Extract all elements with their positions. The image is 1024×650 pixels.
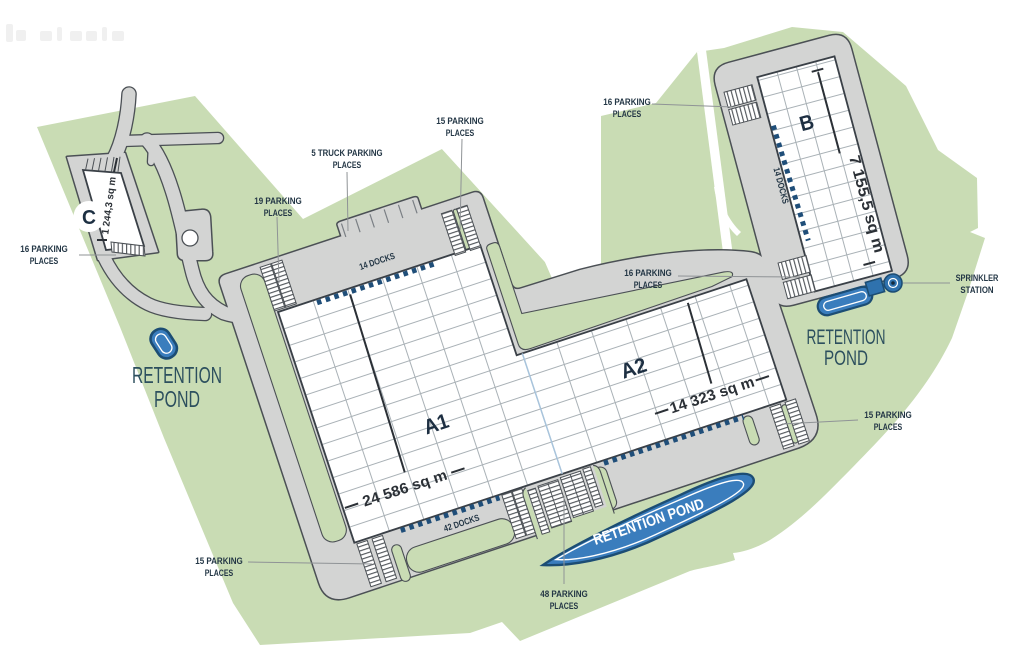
- svg-text:PLACES: PLACES: [874, 422, 903, 433]
- svg-text:PLACES: PLACES: [205, 568, 234, 579]
- svg-text:RETENTION: RETENTION: [132, 362, 222, 388]
- svg-text:STATION: STATION: [960, 285, 993, 296]
- svg-text:PLACES: PLACES: [264, 208, 293, 219]
- svg-text:48 PARKING: 48 PARKING: [540, 589, 588, 600]
- svg-text:16 PARKING: 16 PARKING: [624, 268, 672, 279]
- svg-text:SPRINKLER: SPRINKLER: [956, 273, 999, 284]
- svg-text:C: C: [82, 207, 96, 229]
- svg-text:5 TRUCK PARKING: 5 TRUCK PARKING: [311, 148, 382, 159]
- svg-text:15 PARKING: 15 PARKING: [195, 556, 243, 567]
- svg-text:PLACES: PLACES: [333, 160, 362, 171]
- svg-text:POND: POND: [154, 386, 200, 412]
- svg-text:16 PARKING: 16 PARKING: [603, 97, 651, 108]
- svg-text:15 PARKING: 15 PARKING: [436, 116, 484, 127]
- svg-text:PLACES: PLACES: [30, 256, 59, 267]
- svg-text:PLACES: PLACES: [446, 128, 475, 139]
- svg-text:PLACES: PLACES: [634, 280, 663, 291]
- svg-text:RETENTION: RETENTION: [807, 326, 886, 349]
- svg-text:POND: POND: [824, 347, 868, 370]
- svg-text:15 PARKING: 15 PARKING: [864, 410, 912, 421]
- svg-text:16 PARKING: 16 PARKING: [20, 244, 68, 255]
- svg-text:PLACES: PLACES: [550, 601, 579, 612]
- svg-text:19 PARKING: 19 PARKING: [254, 196, 302, 207]
- svg-text:PLACES: PLACES: [613, 109, 642, 120]
